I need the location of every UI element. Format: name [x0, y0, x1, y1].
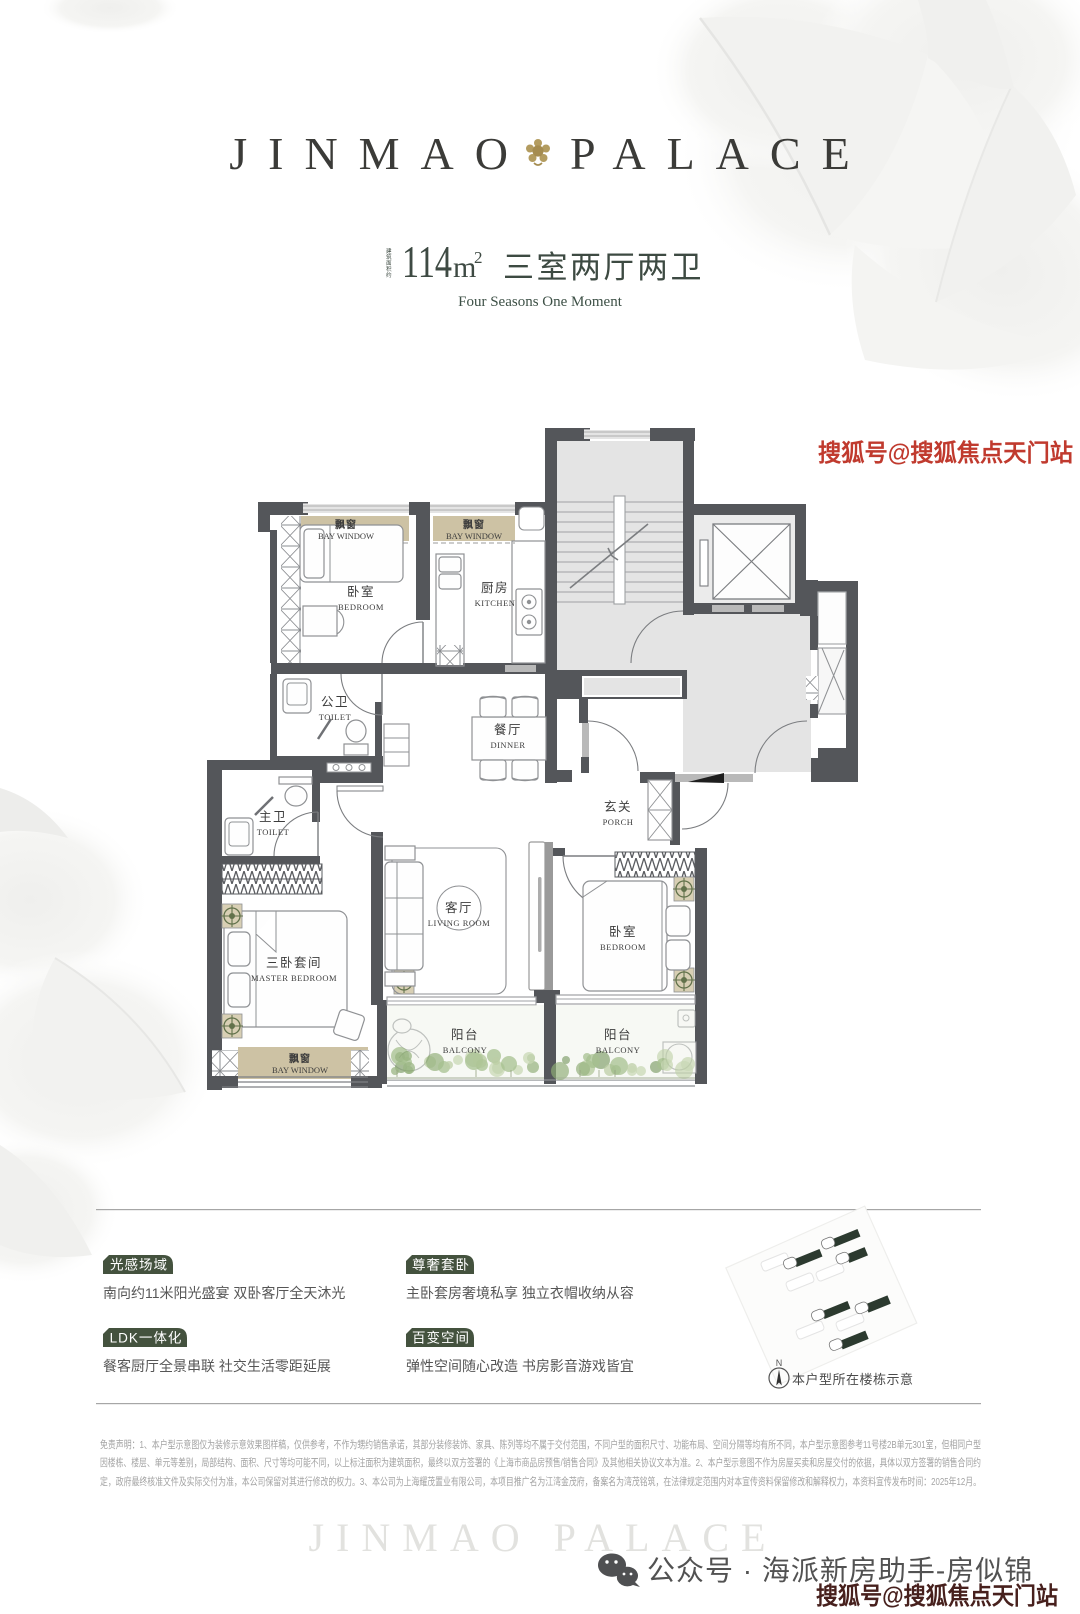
- svg-text:m: m: [453, 251, 476, 284]
- svg-text:积: 积: [386, 265, 392, 273]
- svg-text:光感场域: 光感场域: [110, 1257, 168, 1273]
- svg-text:玄关: 玄关: [604, 799, 632, 814]
- svg-text:BAY WINDOW: BAY WINDOW: [446, 531, 502, 541]
- svg-text:KITCHEN: KITCHEN: [475, 598, 516, 608]
- svg-text:TOILET: TOILET: [319, 712, 352, 722]
- svg-text:2: 2: [474, 248, 483, 267]
- svg-text:厨房: 厨房: [481, 580, 509, 595]
- svg-text:餐厅: 餐厅: [494, 722, 522, 737]
- svg-text:PALACE: PALACE: [570, 128, 871, 179]
- svg-text:百变空间: 百变空间: [412, 1331, 470, 1346]
- svg-text:Four Seasons One Moment: Four Seasons One Moment: [458, 294, 623, 310]
- svg-text:免责声明：1、本户型示意图仅为装修示意效果图样稿，仅供参考，: 免责声明：1、本户型示意图仅为装修示意效果图样稿，仅供参考，不作为甥约销售承诺，…: [100, 1438, 981, 1451]
- svg-text:114: 114: [402, 237, 452, 287]
- svg-text:尊奢套卧: 尊奢套卧: [412, 1258, 470, 1273]
- svg-text:PORCH: PORCH: [603, 817, 634, 827]
- svg-text:面: 面: [386, 260, 392, 267]
- svg-text:阳台: 阳台: [451, 1027, 479, 1042]
- svg-text:MASTER BEDROOM: MASTER BEDROOM: [251, 973, 337, 983]
- svg-text:搜狐号@搜狐焦点天门站: 搜狐号@搜狐焦点天门站: [816, 1582, 1058, 1610]
- svg-text:约: 约: [386, 271, 392, 279]
- svg-text:筑: 筑: [386, 253, 392, 261]
- svg-text:BAY WINDOW: BAY WINDOW: [272, 1065, 328, 1075]
- svg-text:因楼栋、楼层、单元等差别，局部结构、面积、尺寸等均可能不同，: 因楼栋、楼层、单元等差别，局部结构、面积、尺寸等均可能不同，以上标注面积为建筑面…: [100, 1456, 981, 1469]
- svg-text:卧室: 卧室: [609, 924, 637, 939]
- svg-text:卧室: 卧室: [347, 584, 375, 599]
- svg-text:BALCONY: BALCONY: [596, 1045, 641, 1055]
- svg-text:BEDROOM: BEDROOM: [600, 942, 646, 952]
- svg-text:弹性空间随心改造 书房影音游戏皆宜: 弹性空间随心改造 书房影音游戏皆宜: [406, 1358, 634, 1374]
- svg-text:DINNER: DINNER: [490, 740, 525, 750]
- svg-text:BALCONY: BALCONY: [443, 1045, 488, 1055]
- svg-text:飘窗: 飘窗: [335, 518, 357, 531]
- svg-text:客厅: 客厅: [445, 900, 473, 915]
- svg-text:南向约11米阳光盛宴 双卧客厅全天沐光: 南向约11米阳光盛宴 双卧客厅全天沐光: [103, 1285, 345, 1301]
- svg-text:餐客厨厅全景串联 社交生活零距延展: 餐客厨厅全景串联 社交生活零距延展: [103, 1358, 331, 1374]
- svg-text:JINMAO: JINMAO: [229, 128, 529, 179]
- svg-text:JINMAO PALACE: JINMAO PALACE: [308, 1515, 777, 1560]
- svg-text:三卧套间: 三卧套间: [266, 955, 322, 970]
- svg-text:公众号 · 海派新房助手-房似锦: 公众号 · 海派新房助手-房似锦: [647, 1555, 1033, 1586]
- svg-text:公卫: 公卫: [321, 695, 349, 709]
- svg-text:LIVING ROOM: LIVING ROOM: [428, 918, 490, 928]
- svg-text:建: 建: [386, 247, 392, 255]
- svg-text:定，政府最终核准文件及实际交付为准，本公司保留对其进行修改的: 定，政府最终核准文件及实际交付为准，本公司保留对其进行修改的权力。3、本公司为上…: [100, 1475, 981, 1488]
- svg-text:搜狐号@搜狐焦点天门站: 搜狐号@搜狐焦点天门站: [818, 439, 1073, 467]
- svg-text:飘窗: 飘窗: [289, 1052, 311, 1065]
- svg-text:TOILET: TOILET: [257, 827, 290, 837]
- svg-text:本户型所在楼栋示意: 本户型所在楼栋示意: [792, 1372, 914, 1387]
- svg-text:N: N: [776, 1358, 783, 1368]
- svg-text:飘窗: 飘窗: [463, 518, 485, 531]
- svg-text:LDK一体化: LDK一体化: [110, 1331, 183, 1346]
- svg-text:主卧套房奢境私享 独立衣帽收纳从容: 主卧套房奢境私享 独立衣帽收纳从容: [406, 1285, 634, 1301]
- svg-text:阳台: 阳台: [604, 1027, 632, 1042]
- svg-text:主卫: 主卫: [259, 810, 287, 824]
- svg-text:BAY WINDOW: BAY WINDOW: [318, 531, 374, 541]
- svg-text:三室两厅两卫: 三室两厅两卫: [503, 250, 704, 285]
- svg-text:BEDROOM: BEDROOM: [338, 602, 384, 612]
